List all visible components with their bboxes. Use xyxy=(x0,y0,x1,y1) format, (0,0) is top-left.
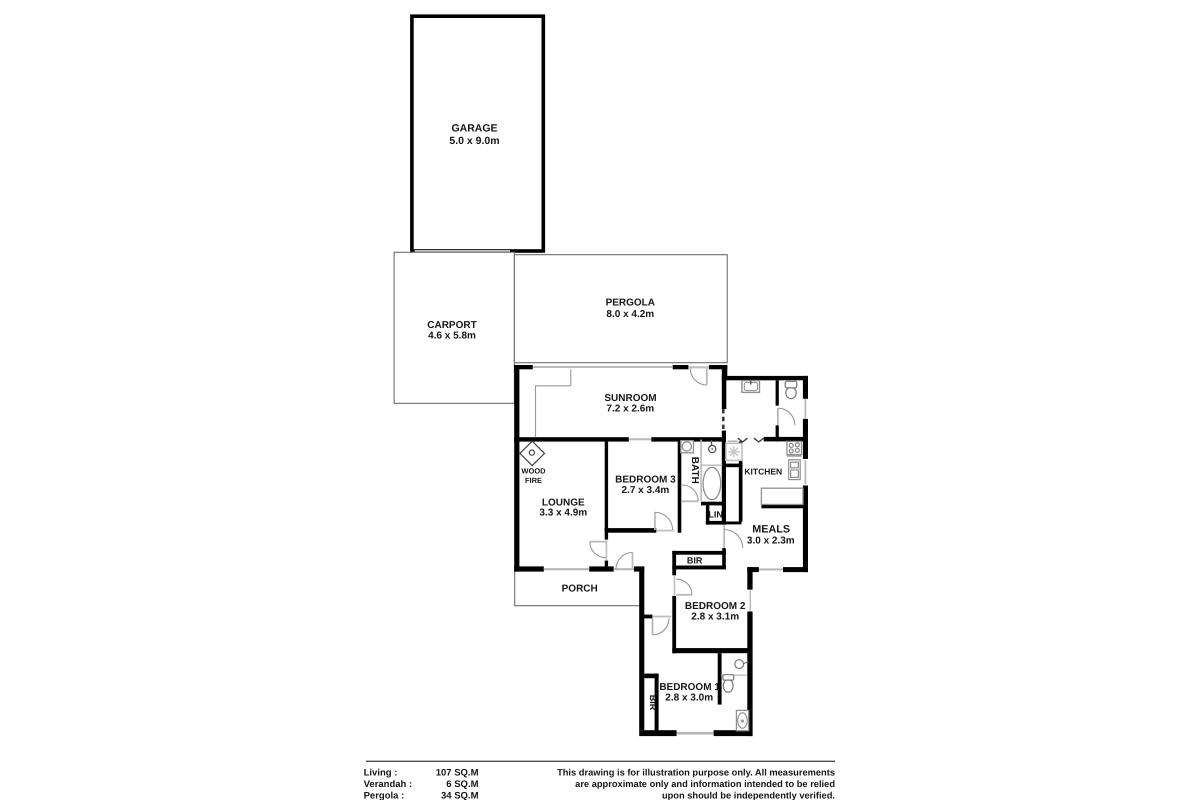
svg-text:3.0 x 2.3m: 3.0 x 2.3m xyxy=(747,535,795,546)
svg-text:34 SQ.M: 34 SQ.M xyxy=(441,791,479,800)
svg-text:BIR: BIR xyxy=(687,556,703,566)
svg-text:2.7 x 3.4m: 2.7 x 3.4m xyxy=(621,485,669,496)
svg-text:PERGOLA: PERGOLA xyxy=(606,297,655,308)
svg-text:FIRE: FIRE xyxy=(525,476,542,485)
svg-text:BATH: BATH xyxy=(689,457,700,484)
svg-text:CARPORT: CARPORT xyxy=(427,320,476,331)
svg-text:2.8 x 3.0m: 2.8 x 3.0m xyxy=(665,692,713,703)
svg-text:Living :: Living : xyxy=(364,768,398,779)
svg-text:5.0 x 9.0m: 5.0 x 9.0m xyxy=(449,135,499,147)
svg-text:4.6 x 5.8m: 4.6 x 5.8m xyxy=(428,330,476,341)
svg-text:2.8 x 3.1m: 2.8 x 3.1m xyxy=(691,612,739,623)
svg-text:LOUNGE: LOUNGE xyxy=(542,497,585,508)
svg-text:107 SQ.M: 107 SQ.M xyxy=(436,768,479,779)
svg-text:SUNROOM: SUNROOM xyxy=(604,393,656,404)
svg-text:6 SQ.M: 6 SQ.M xyxy=(446,779,478,790)
svg-text:BEDROOM 2: BEDROOM 2 xyxy=(685,601,746,612)
svg-text:BIR: BIR xyxy=(648,695,658,711)
svg-text:WOOD: WOOD xyxy=(521,467,546,476)
svg-text:7.2 x 2.6m: 7.2 x 2.6m xyxy=(606,403,654,414)
svg-text:Verandah :: Verandah : xyxy=(364,779,413,790)
svg-text:are approximate only and infor: are approximate only and information int… xyxy=(575,779,835,789)
svg-text:upon should be independently v: upon should be independently verified. xyxy=(662,791,835,800)
svg-text:3.3 x 4.9m: 3.3 x 4.9m xyxy=(539,508,587,519)
svg-text:MEALS: MEALS xyxy=(752,523,790,535)
svg-text:Pergola :: Pergola : xyxy=(364,791,405,800)
svg-text:8.0 x 4.2m: 8.0 x 4.2m xyxy=(606,309,654,320)
svg-text:PORCH: PORCH xyxy=(562,584,598,595)
svg-text:LIN: LIN xyxy=(708,509,723,519)
svg-text:BEDROOM 3: BEDROOM 3 xyxy=(615,475,676,486)
svg-text:GARAGE: GARAGE xyxy=(451,123,497,135)
svg-text:KITCHEN: KITCHEN xyxy=(744,466,782,476)
svg-text:This drawing is for illustrati: This drawing is for illustration purpose… xyxy=(557,768,835,778)
